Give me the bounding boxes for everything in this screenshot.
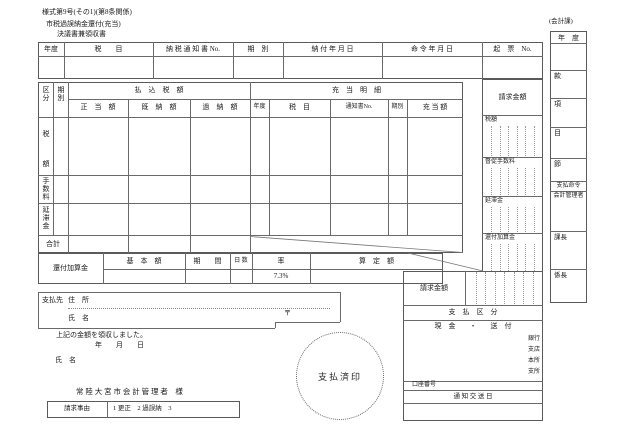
seikyu-kingaku-label: 請求金額 <box>482 93 543 101</box>
divider <box>550 191 587 192</box>
divider <box>403 305 543 306</box>
col-label-kubun: 区分 <box>42 86 50 102</box>
group-header-juto: 充 当 明 細 <box>250 86 463 94</box>
address-label: 住 所 <box>68 296 89 304</box>
divider <box>38 56 543 57</box>
subheader-nendo: 年度 <box>250 104 269 111</box>
divider <box>38 117 463 118</box>
divider <box>107 401 108 418</box>
kasankin-label: 還付加算金 <box>38 264 103 272</box>
kasankin-santeigaku: 算 定 額 <box>310 257 443 265</box>
header-meirei-date: 命 令 年 月 日 <box>382 45 482 53</box>
digit-separator <box>534 126 535 156</box>
account-nendo: 年 度 <box>550 34 587 42</box>
digit-grid-entaikin <box>483 207 542 232</box>
subheader-tsuchisho: 通知書No. <box>330 104 388 111</box>
panel-tokusoku-label: 督促手数料 <box>485 159 515 166</box>
kasankin-nissu: 日 数 <box>230 258 252 265</box>
branch-label: 支店 <box>514 347 540 354</box>
digit-separator <box>525 126 526 156</box>
divider <box>550 127 587 128</box>
account-kan: 款 <box>554 72 561 80</box>
receipt-statement: 上記の金額を領収しました。 <box>56 331 147 339</box>
divider <box>550 158 587 159</box>
divider <box>38 175 463 176</box>
divider <box>482 196 543 197</box>
addressee: 常 陸 大 宮 市 会 計 管 理 者 様 <box>76 388 183 397</box>
digit-separator <box>508 207 509 232</box>
divider <box>550 181 587 182</box>
digit-separator <box>491 244 492 271</box>
divider <box>550 231 587 232</box>
subheader-seito: 正 当 額 <box>68 103 128 111</box>
divider <box>68 99 463 100</box>
panel-kasankin-label: 還付加算金 <box>485 235 515 242</box>
kacho-label: 課長 <box>554 234 567 241</box>
row-label-zeigaku: 税 額 <box>42 130 50 175</box>
tsuchi-label: 通 知 交 送 日 <box>403 393 543 400</box>
form-number: 様式第9号(その1)(第8条関係) <box>42 8 132 16</box>
kakaricho-label: 係長 <box>554 272 567 279</box>
digit-separator <box>491 168 492 195</box>
payee-box-right <box>340 292 341 322</box>
kasankin-rate-value: 7.3% <box>252 272 310 280</box>
shiharai-meirei-label: 支払命令 <box>550 183 587 190</box>
divider <box>403 390 543 391</box>
divider <box>482 157 543 158</box>
kasankin-ritsu: 率 <box>252 257 310 265</box>
kaikei-kanrisha-label: 会計管理者 <box>550 193 587 200</box>
panel-entaikin-label: 延滞金 <box>485 198 503 205</box>
payee-box-bottom-right <box>275 322 340 323</box>
tax-refund-form: 様式第9号(その1)(第8条関係) 市税過誤納金還付(充当) 決議書兼領収書 (… <box>0 0 630 439</box>
digit-separator <box>517 168 518 195</box>
divider <box>550 98 587 99</box>
digit-separator <box>534 168 535 195</box>
digit-separator <box>508 244 509 271</box>
digit-grid-tokusoku <box>483 168 542 195</box>
koza-label: 口座番号 <box>412 382 436 389</box>
digit-separator <box>508 168 509 195</box>
sub-office-label: 支所 <box>514 369 540 376</box>
digit-separator <box>491 207 492 232</box>
payee-box-top <box>38 292 340 293</box>
head-office-label: 本所 <box>514 358 540 365</box>
divider <box>482 233 543 234</box>
doc-title-line2: 決議書兼領収書 <box>57 30 106 38</box>
digit-separator <box>517 126 518 156</box>
header-kihyo-no: 起 票 No. <box>482 45 543 53</box>
divider <box>103 269 443 270</box>
payee-box-bottom-left <box>38 328 275 329</box>
receipt-date-label: 年 月 日 <box>95 341 144 349</box>
divider <box>190 99 191 253</box>
reason-label: 請求事由 <box>47 405 107 412</box>
digit-separator <box>491 126 492 156</box>
divider <box>550 70 587 71</box>
divider <box>128 99 129 253</box>
row-label-total: 合計 <box>38 240 68 248</box>
digit-grid-zeigaku <box>483 126 542 156</box>
paid-stamp-label: 支払済印 <box>318 370 362 383</box>
digit-separator <box>500 244 501 271</box>
kasankin-kihongaku: 基 本 額 <box>103 257 185 265</box>
subheader-kibetsu2: 期別 <box>388 104 407 111</box>
divider <box>53 82 54 235</box>
digit-separator <box>500 168 501 195</box>
header-nendo: 年度 <box>38 45 64 53</box>
reason-content: 1 更正 2 過誤納 3 <box>113 405 172 412</box>
divider <box>407 99 408 235</box>
kasankin-kikan: 期 間 <box>185 257 230 265</box>
divider <box>403 403 543 404</box>
col-label-kibetsu: 期別 <box>57 86 65 102</box>
header-kibetsu: 期 別 <box>233 45 283 53</box>
group-header-paid: 払 込 税 額 <box>68 86 250 94</box>
shiharai-kubun-label: 支 払 区 分 <box>403 308 543 316</box>
subheader-kano: 過 納 額 <box>190 103 250 111</box>
account-moku: 目 <box>554 129 561 137</box>
paid-stamp-circle: 支払済印 <box>296 332 384 420</box>
digit-separator <box>517 207 518 232</box>
divider <box>482 115 543 116</box>
dept-label: (会計課) <box>549 18 573 25</box>
digit-separator <box>525 244 526 271</box>
digit-grid-kasankin <box>483 244 542 271</box>
digit-separator <box>525 207 526 232</box>
divider <box>269 99 270 235</box>
bank-label: 銀行 <box>514 336 540 343</box>
subheader-jutogaku: 充 当 額 <box>407 103 463 111</box>
digit-separator <box>523 272 524 304</box>
digit-separator <box>508 126 509 156</box>
header-nofu-date: 納 付 年 月 日 <box>283 45 382 53</box>
header-tsuchisho-no: 納 税 通 知 書 No. <box>153 45 233 53</box>
digit-separator <box>517 244 518 271</box>
divider <box>388 99 389 235</box>
account-setsu: 節 <box>554 160 561 168</box>
header-zeimoku: 税 目 <box>64 45 153 53</box>
digit-separator <box>485 272 486 304</box>
divider <box>403 320 543 321</box>
digit-separator <box>525 168 526 195</box>
digit-separator <box>534 207 535 232</box>
digit-separator <box>476 272 477 304</box>
account-ko: 項 <box>554 100 561 108</box>
digit-separator <box>514 272 515 304</box>
digit-separator <box>504 272 505 304</box>
doc-title-line1: 市税過誤納金還付(充当) <box>46 20 121 28</box>
subheader-zeimoku: 税 目 <box>269 103 330 111</box>
divider <box>550 269 587 270</box>
digit-separator <box>495 272 496 304</box>
divider <box>38 235 463 236</box>
postal-mark: 〒 <box>284 309 291 317</box>
panel-zeigaku-label: 税額 <box>485 117 497 124</box>
divider <box>550 43 587 44</box>
digit-separator <box>500 207 501 232</box>
digit-separator <box>533 272 534 304</box>
payee-label: 支払先 <box>42 296 63 304</box>
payee-box-left <box>38 292 39 328</box>
receipt-name-label: 氏 名 <box>55 356 76 364</box>
divider <box>38 203 463 204</box>
payee-name-label: 氏 名 <box>68 314 89 322</box>
row-label-tesuryo: 手数料 <box>42 177 50 201</box>
row-label-entaikin: 延滞金 <box>42 206 50 230</box>
seikyu-kingaku-bottom-label: 請求金額 <box>403 284 465 292</box>
digit-separator <box>534 244 535 271</box>
cash-send-label: 現 金 ・ 送 付 <box>403 322 543 330</box>
subheader-kino: 既 納 額 <box>128 103 190 111</box>
digit-grid-seikyu <box>466 272 542 304</box>
digit-separator <box>500 126 501 156</box>
divider <box>330 99 331 235</box>
